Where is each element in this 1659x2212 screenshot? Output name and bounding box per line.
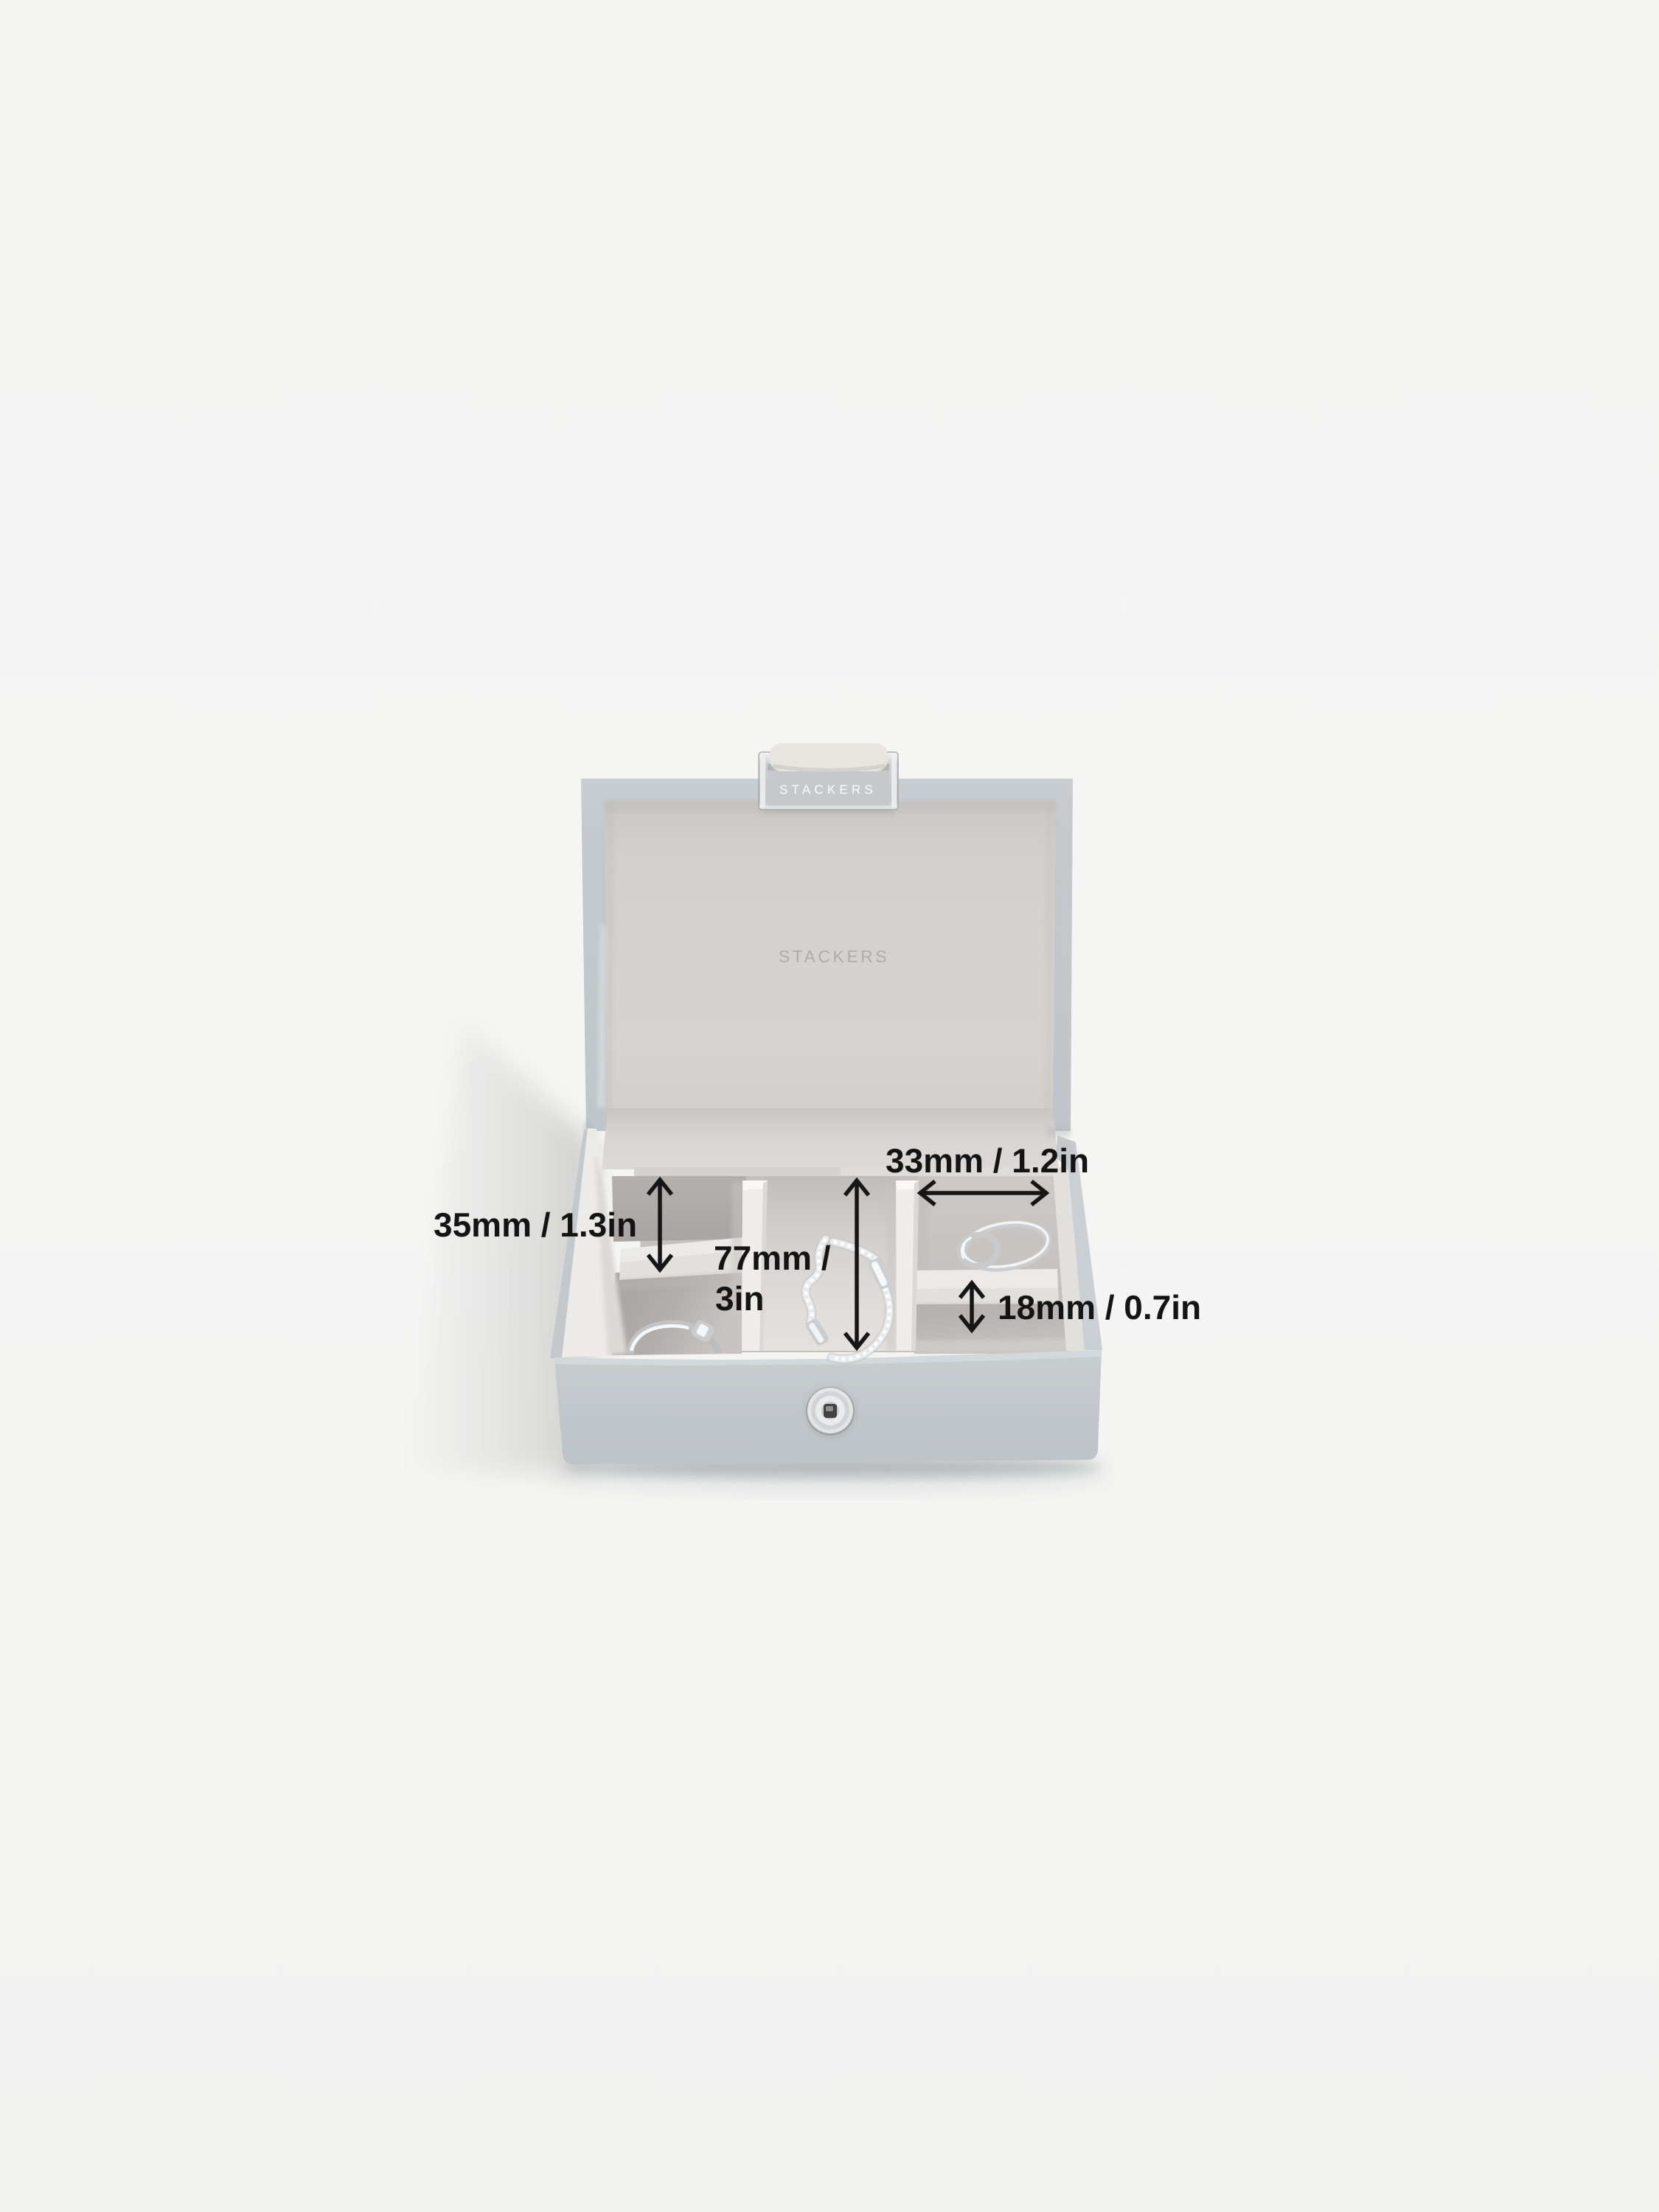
svg-text:STACKERS: STACKERS: [779, 947, 889, 966]
svg-text:18mm / 0.7in: 18mm / 0.7in: [998, 1288, 1201, 1326]
svg-text:35mm / 1.3in: 35mm / 1.3in: [434, 1206, 637, 1244]
svg-text:3in: 3in: [715, 1279, 764, 1318]
svg-text:33mm / 1.2in: 33mm / 1.2in: [886, 1141, 1089, 1180]
svg-text:77mm /: 77mm /: [714, 1239, 831, 1277]
svg-text:STACKERS: STACKERS: [779, 783, 877, 797]
